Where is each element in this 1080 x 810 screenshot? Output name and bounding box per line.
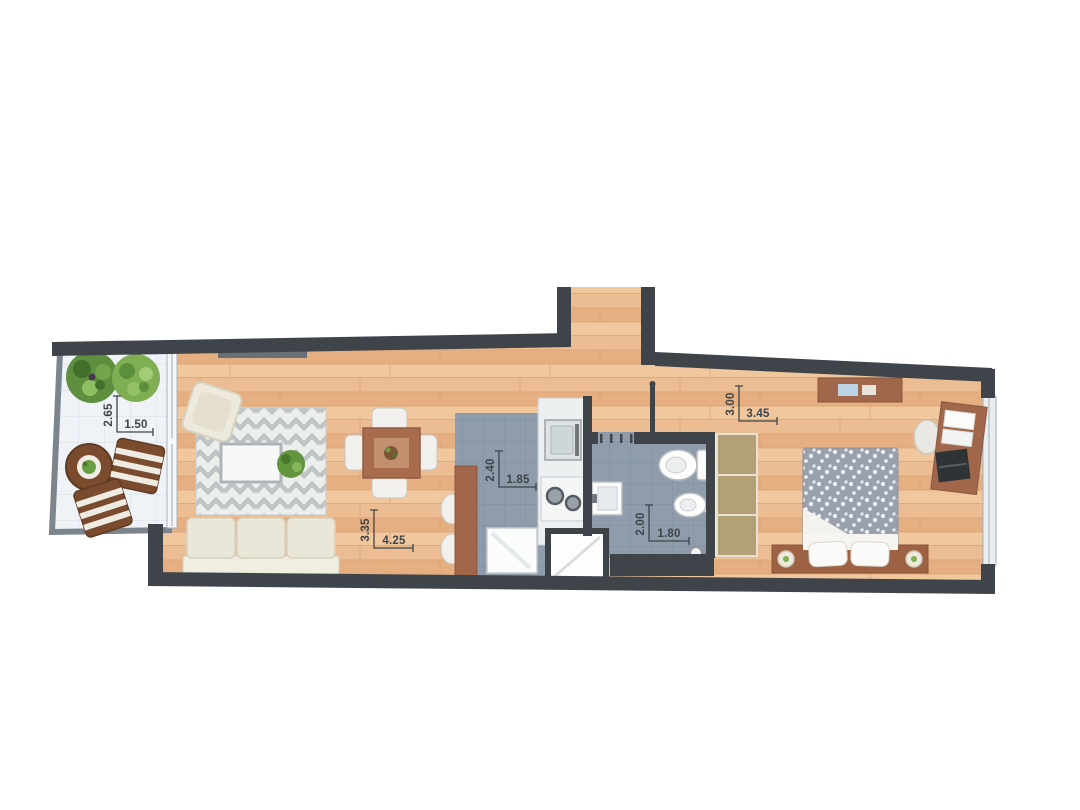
dresser xyxy=(818,378,902,402)
floor-plan-svg: 2.65 1.50 3.35 4.25 2.40 1.85 2.00 1.80 … xyxy=(0,0,1080,810)
stove xyxy=(541,477,587,521)
dim-balcony-h: 1.50 xyxy=(124,419,147,431)
wardrobe xyxy=(713,434,757,556)
balcony-glass-door xyxy=(167,350,177,528)
dim-kitchen-v: 2.40 xyxy=(485,458,497,481)
dim-living-h: 4.25 xyxy=(382,535,406,547)
bathroom-sink xyxy=(592,482,622,515)
dim-kitchen-h: 1.85 xyxy=(506,474,530,486)
balcony-plant-1 xyxy=(66,351,118,403)
floor-plan: 2.65 1.50 3.35 4.25 2.40 1.85 2.00 1.80 … xyxy=(0,0,1080,810)
kitchen-sink xyxy=(545,420,581,460)
bedroom-door xyxy=(650,381,656,437)
laptop xyxy=(935,449,970,483)
balcony xyxy=(52,346,172,538)
fridge xyxy=(487,528,537,573)
toilet xyxy=(659,450,710,480)
balcony-plant-2 xyxy=(112,354,160,402)
dim-bathroom-h: 1.80 xyxy=(657,528,680,540)
pillow xyxy=(808,541,847,567)
coffee-table-plant xyxy=(277,450,305,478)
dim-balcony-v: 2.65 xyxy=(103,403,115,427)
sofa xyxy=(183,518,339,574)
dim-bathroom-v: 2.00 xyxy=(635,512,647,535)
dim-bedroom-h: 3.45 xyxy=(746,408,770,420)
dim-bedroom-v: 3.00 xyxy=(725,392,737,415)
dim-living-v: 3.35 xyxy=(360,518,372,542)
pillow xyxy=(851,541,890,566)
